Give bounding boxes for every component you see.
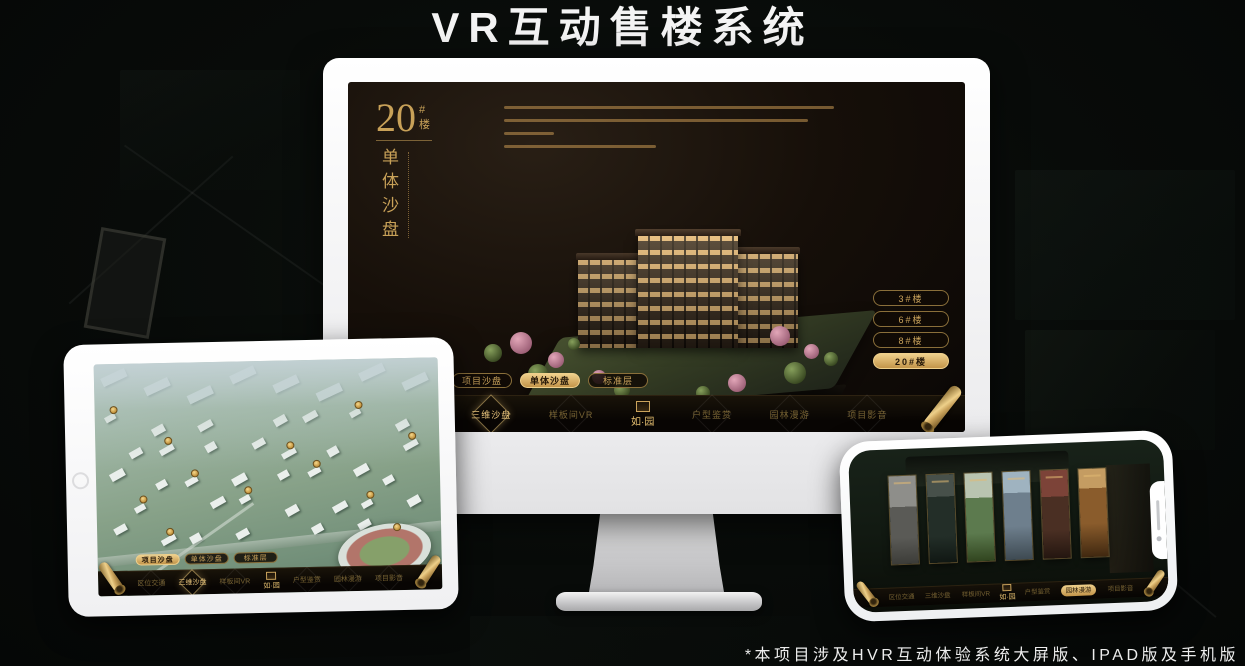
nav-item-3[interactable]: 户型鉴赏	[692, 408, 732, 421]
nav-item-0[interactable]: 区位交通	[889, 592, 915, 602]
seal-icon	[1003, 584, 1012, 591]
logo-text: 如·园	[631, 413, 654, 428]
building-number-badge[interactable]	[312, 460, 320, 468]
phone-navbar: 区位交通三维沙盘样板间VR如·园户型鉴赏园林漫游项目影音	[853, 577, 1168, 608]
nav-item-5[interactable]: 项目影音	[847, 408, 887, 421]
building-number-badge[interactable]	[166, 528, 174, 536]
building-number-badge[interactable]	[393, 523, 401, 531]
promo-canvas: VR互动售楼系统 20 #楼 单体沙盘	[0, 0, 1245, 666]
phone-device: 区位交通三维沙盘样板间VR如·园户型鉴赏园林漫游项目影音	[839, 430, 1179, 623]
tree	[770, 326, 790, 346]
phone-screen: 区位交通三维沙盘样板间VR如·园户型鉴赏园林漫游项目影音	[848, 439, 1169, 613]
bg-plaque	[84, 227, 167, 339]
tree	[548, 352, 564, 368]
ruyuan-logo: 如·园	[631, 401, 654, 428]
bg-photo	[120, 70, 300, 190]
phone-notch	[1149, 481, 1167, 560]
desc-line	[504, 132, 554, 135]
seal-icon	[266, 571, 276, 579]
tab-single-sandtable[interactable]: 单体沙盘	[185, 553, 229, 565]
building-number-badge[interactable]	[354, 401, 362, 409]
nav-item-1[interactable]: 三维沙盘	[178, 577, 206, 588]
scene-gallery	[889, 469, 1109, 565]
floor-button-6[interactable]: 6#楼	[873, 311, 949, 327]
subtitle-en-decor	[408, 152, 409, 238]
nav-item-3[interactable]: 户型鉴赏	[293, 575, 321, 586]
logo-text: 如·园	[999, 592, 1016, 603]
floor-button-8[interactable]: 8#楼	[873, 332, 949, 348]
tab-standard-floor[interactable]: 标准层	[234, 552, 278, 564]
nav-item-0[interactable]: 区位交通	[137, 578, 165, 589]
speaker-grill-icon	[1156, 500, 1160, 530]
tree	[824, 352, 838, 366]
tree	[484, 344, 502, 362]
gallery-card-6[interactable]	[1078, 469, 1108, 558]
tablet-home-button[interactable]	[72, 472, 89, 489]
front-camera-icon	[1156, 536, 1161, 541]
floor-button-group: 3#楼 6#楼 8#楼 20#楼	[873, 290, 949, 369]
gallery-card-3[interactable]	[965, 473, 995, 562]
bg-photo	[1015, 170, 1235, 320]
tab-standard-floor[interactable]: 标准层	[588, 373, 648, 388]
page-title: VR互动售楼系统	[0, 0, 1245, 56]
tablet-screen: 项目沙盘 单体沙盘 标准层 区位交通三维沙盘样板间VR如·园户型鉴赏园林漫游项目…	[94, 357, 443, 596]
ruyuan-logo: 如·园	[263, 571, 280, 590]
block-number-suffix: #楼	[419, 104, 432, 132]
block-heading: 20 #楼 单体沙盘	[376, 98, 432, 266]
building-number-badge[interactable]	[190, 469, 198, 477]
desc-line	[504, 106, 834, 109]
tree	[804, 344, 819, 359]
tree	[728, 374, 746, 392]
building-wing-left	[578, 260, 640, 348]
tab-project-sandtable[interactable]: 项目沙盘	[136, 554, 180, 566]
nav-item-5[interactable]: 项目影音	[375, 573, 403, 584]
nav-item-4[interactable]: 园林漫游	[334, 574, 362, 585]
tab-project-sandtable[interactable]: 项目沙盘	[452, 373, 512, 388]
block-subtitle-vertical: 单体沙盘	[376, 148, 401, 266]
gallery-card-2[interactable]	[927, 474, 957, 563]
nav-item-4[interactable]: 园林漫游	[770, 408, 810, 421]
nav-item-2[interactable]: 样板间VR	[961, 589, 990, 599]
nav-item-1[interactable]: 三维沙盘	[471, 408, 511, 421]
tree	[568, 338, 580, 350]
block-number: 20	[376, 98, 416, 138]
gallery-card-5[interactable]	[1040, 470, 1070, 559]
nav-item-3[interactable]: 户型鉴赏	[1025, 587, 1051, 597]
tab-single-sandtable[interactable]: 单体沙盘	[520, 373, 580, 388]
nav-item-2[interactable]: 样板间VR	[219, 576, 250, 587]
desc-line	[504, 119, 808, 122]
tree	[784, 362, 806, 384]
building-core	[638, 236, 738, 348]
floor-button-3[interactable]: 3#楼	[873, 290, 949, 306]
nav-item-2[interactable]: 样板间VR	[549, 408, 594, 421]
nav-item-1[interactable]: 三维沙盘	[925, 591, 951, 601]
monitor-stand-neck	[588, 512, 725, 598]
nav-item-5[interactable]: 项目影音	[1107, 584, 1133, 594]
footnote: *本项目涉及HVR互动体验系统大屏版、IPAD版及手机版	[745, 641, 1239, 665]
floor-button-20[interactable]: 20#楼	[873, 353, 949, 369]
tree	[510, 332, 532, 354]
nav-item-4[interactable]: 园林漫游	[1061, 584, 1096, 596]
gallery-card-1[interactable]	[889, 476, 919, 565]
logo-text: 如·园	[263, 580, 280, 590]
tablet-device: 项目沙盘 单体沙盘 标准层 区位交通三维沙盘样板间VR如·园户型鉴赏园林漫游项目…	[63, 337, 459, 617]
seal-icon	[636, 401, 650, 412]
mode-tab-group: 项目沙盘 单体沙盘 标准层	[452, 373, 648, 388]
ruyuan-logo: 如·园	[999, 584, 1016, 603]
interior-column-silhouette	[1106, 464, 1154, 574]
monitor-stand-base	[556, 592, 762, 611]
gallery-card-4[interactable]	[1002, 471, 1032, 560]
